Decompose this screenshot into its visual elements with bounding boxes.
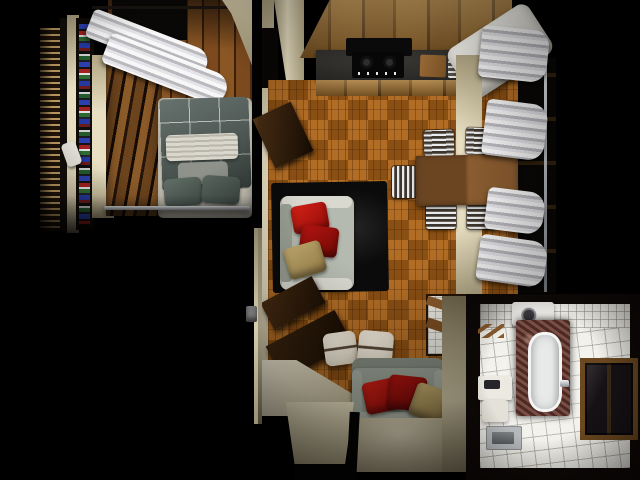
living-floor-bottom (354, 418, 456, 472)
bathroom (466, 294, 640, 480)
window-curtain (477, 25, 550, 84)
bookshelf-books (79, 24, 90, 224)
double-bed (158, 98, 252, 218)
sink-pedestal (482, 400, 508, 422)
wall-edge (254, 228, 262, 424)
loveseat (352, 358, 444, 426)
wall-gap (60, 18, 67, 233)
cooktop-knobs (358, 72, 398, 75)
wood-slat-panel (40, 28, 60, 231)
sofa-on-rug (280, 196, 354, 290)
window-curtain (481, 98, 549, 161)
pillow-right (201, 175, 241, 206)
bathtub-faucet (560, 380, 569, 387)
bathroom-outer-wall (442, 296, 468, 472)
folded-blanket (166, 133, 239, 161)
curtain-rod (92, 6, 234, 9)
shower-tray-drain (492, 432, 514, 444)
bed-rail (104, 206, 250, 210)
window-curtain (475, 233, 549, 288)
bathroom-window (580, 358, 638, 440)
kitchen-wall-wedge (274, 0, 304, 80)
dining-chair (424, 129, 455, 156)
dining-chair (426, 203, 456, 229)
pillow-left (163, 176, 203, 207)
entry-door (294, 464, 346, 480)
left-doorway (262, 28, 278, 88)
dining-chair (392, 166, 416, 198)
towel-rack (478, 324, 504, 338)
sink-basin (484, 380, 500, 389)
cutting-board (420, 55, 447, 78)
apartment-floorplan-render (0, 0, 640, 480)
bathtub (528, 332, 562, 412)
window-curtain (484, 187, 547, 236)
light-switch (246, 306, 257, 322)
